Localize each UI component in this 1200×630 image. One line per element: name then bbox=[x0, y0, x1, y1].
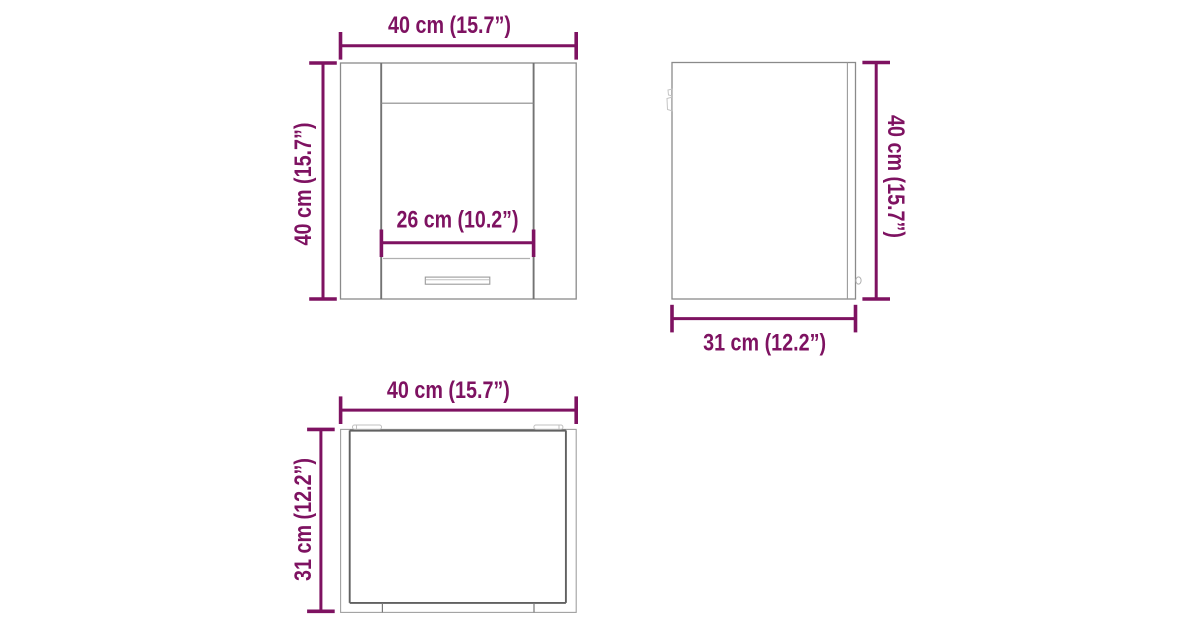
svg-text:40 cm (15.7”): 40 cm (15.7”) bbox=[290, 123, 317, 246]
svg-text:31 cm (12.2”): 31 cm (12.2”) bbox=[290, 458, 317, 581]
svg-text:40 cm (15.7”): 40 cm (15.7”) bbox=[882, 115, 909, 238]
svg-text:31 cm (12.2”): 31 cm (12.2”) bbox=[703, 330, 826, 357]
svg-text:26 cm (10.2”): 26 cm (10.2”) bbox=[397, 207, 519, 234]
svg-text:40 cm (15.7”): 40 cm (15.7”) bbox=[387, 377, 510, 404]
svg-text:40 cm (15.7”): 40 cm (15.7”) bbox=[388, 12, 511, 39]
